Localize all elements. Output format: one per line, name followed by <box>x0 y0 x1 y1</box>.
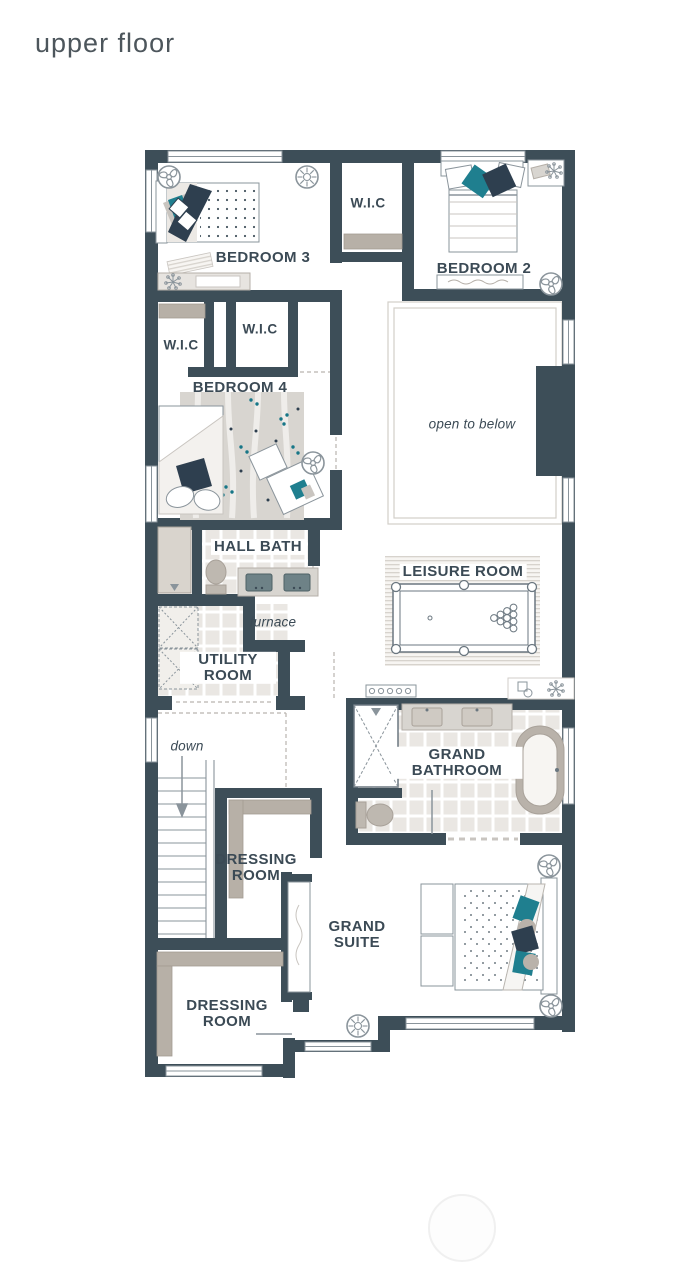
bedroom3-bed <box>156 181 259 243</box>
room-label-bedroom2: BEDROOM 2 <box>437 261 531 277</box>
room-label-dressing-room-1: DRESSING ROOM <box>204 852 309 884</box>
room-label-bedroom3: BEDROOM 3 <box>216 250 310 266</box>
room-label-bedroom4: BEDROOM 4 <box>193 380 287 396</box>
window <box>406 1018 534 1029</box>
window <box>441 151 525 162</box>
ceiling-fan-icon <box>540 273 562 295</box>
pool-table <box>392 581 537 656</box>
floor-plan: BEDROOM 3 W.I.C BEDROOM 2 W.I.C W.I.C BE… <box>0 0 700 1270</box>
bedroom3-rug <box>167 253 213 276</box>
bedroom2-dresser <box>437 275 523 289</box>
hall-bath-toilet <box>206 560 226 594</box>
window <box>146 170 157 232</box>
bathtub <box>516 726 564 814</box>
water-closet-toilet <box>356 802 393 828</box>
ceiling-fan-icon <box>538 855 560 877</box>
room-label-grand-suite: GRAND SUITE <box>317 919 397 951</box>
room-label-wic-left: W.I.C <box>164 339 199 354</box>
bedroom2-bed <box>441 161 525 252</box>
room-label-furnace: furnace <box>250 616 296 631</box>
grand-suite-bed <box>421 878 557 994</box>
window <box>563 478 574 522</box>
ceiling-fan-icon <box>302 452 324 474</box>
ceiling-fan-icon <box>540 995 562 1017</box>
floor-plan-page: upper floor <box>0 0 700 1270</box>
hall-bath-vanity <box>238 568 318 596</box>
room-label-open-to-below: open to below <box>429 418 516 433</box>
watermark-circle <box>429 1195 495 1261</box>
ceiling-fan-icon <box>158 166 180 188</box>
window <box>563 728 574 804</box>
window <box>146 466 157 522</box>
window <box>563 320 574 364</box>
ceiling-light-icon <box>296 166 318 188</box>
room-label-leisure-room: LEISURE ROOM <box>400 564 527 580</box>
hook-rail <box>366 685 416 697</box>
decor-shelf <box>508 678 574 699</box>
open-to-below-void <box>388 302 562 524</box>
grand-bath-vanity <box>402 704 512 730</box>
window <box>168 151 282 162</box>
room-label-down: down <box>170 740 203 755</box>
room-label-utility-room: UTILITY ROOM <box>180 652 276 684</box>
room-label-grand-bathroom: GRAND BATHROOM <box>392 747 523 779</box>
linen-cabinet <box>158 527 191 593</box>
window <box>305 1042 371 1051</box>
wardrobe <box>286 874 312 1000</box>
bedroom4-bed <box>159 406 223 514</box>
window <box>146 718 157 762</box>
window <box>166 1066 262 1076</box>
room-label-wic-bedroom4: W.I.C <box>243 323 278 338</box>
room-label-dressing-room-2: DRESSING ROOM <box>175 998 280 1030</box>
room-label-wic-bedroom3: W.I.C <box>351 197 386 212</box>
ceiling-light-icon <box>347 1015 369 1037</box>
floor-plan-svg <box>0 0 700 1270</box>
room-label-hall-bath: HALL BATH <box>211 539 305 555</box>
